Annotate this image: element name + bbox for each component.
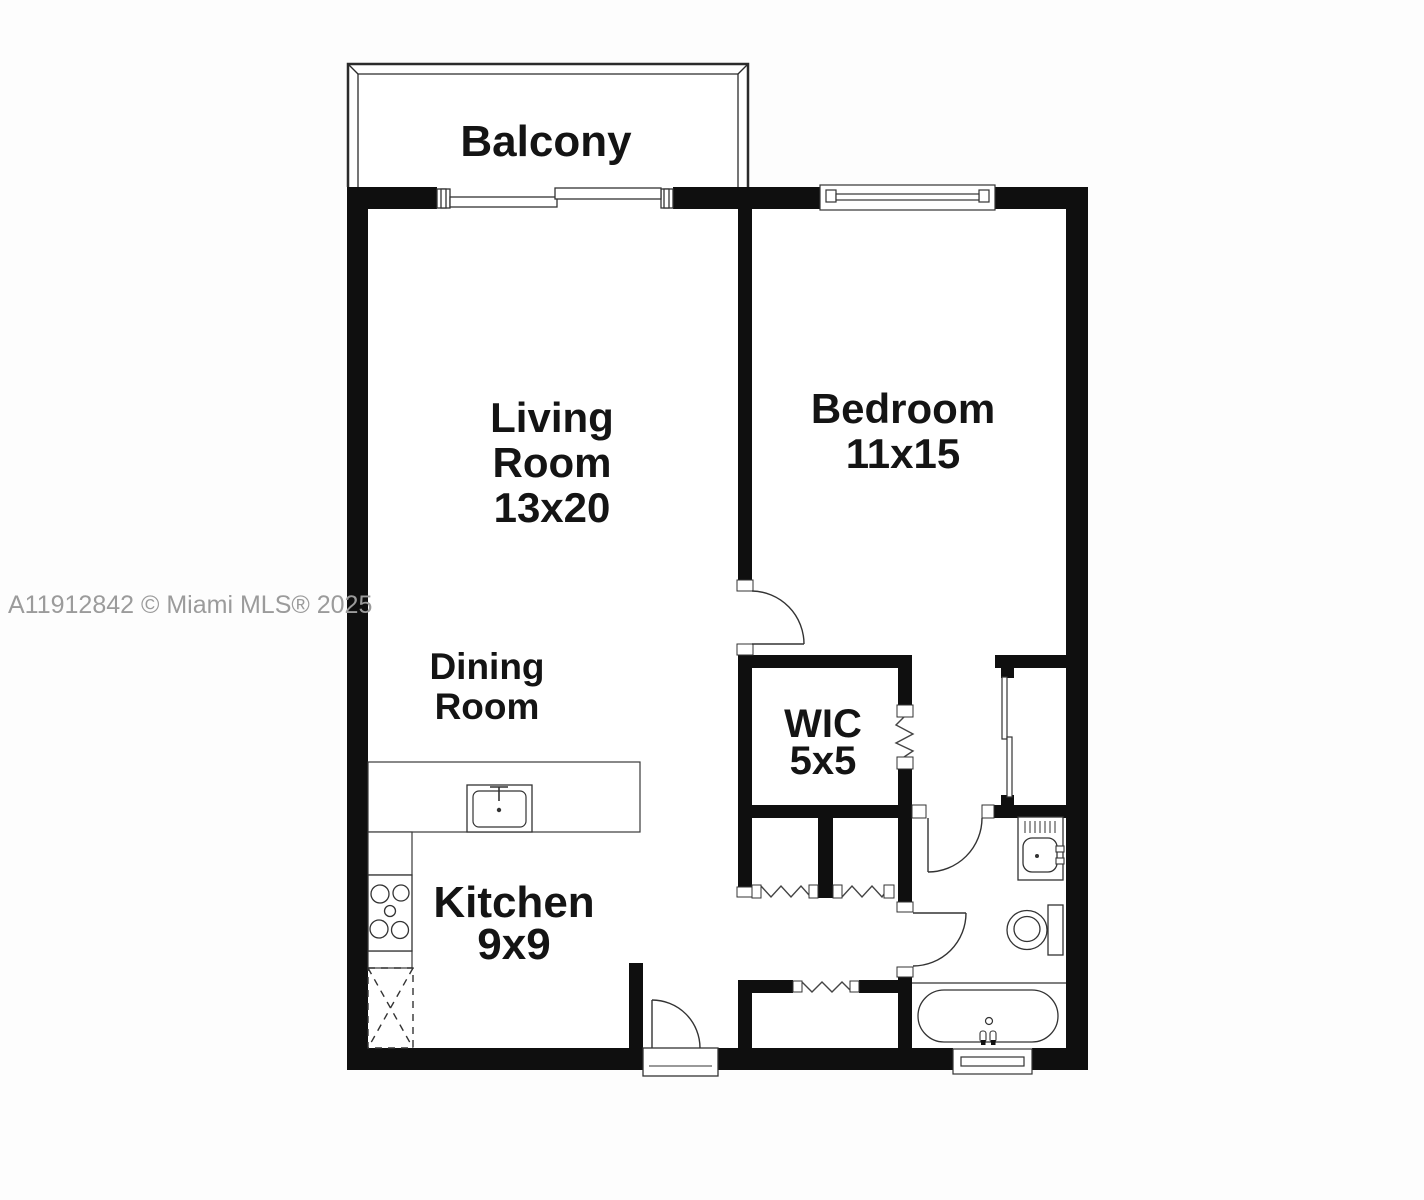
living-room-dims: 13x20 bbox=[494, 484, 611, 531]
floor-plan-drawing: Balcony Living Room 13x20 Bedroom 11x15 … bbox=[0, 0, 1424, 1200]
dining-room-label-line1: Dining bbox=[429, 646, 544, 687]
bedroom-window bbox=[820, 185, 995, 210]
living-room-label-line2: Room bbox=[493, 439, 612, 486]
bedroom-label: Bedroom bbox=[811, 385, 995, 432]
living-room-label-line1: Living bbox=[490, 394, 614, 441]
vanity-sink bbox=[1018, 817, 1064, 880]
kitchen-dims: 9x9 bbox=[477, 920, 550, 969]
bathtub bbox=[912, 983, 1066, 1045]
dining-room-label-line2: Room bbox=[435, 686, 540, 727]
floor-plan-page: Balcony Living Room 13x20 Bedroom 11x15 … bbox=[0, 0, 1424, 1200]
mls-watermark: A11912842 © Miami MLS® 2025 bbox=[8, 591, 372, 619]
balcony-label: Balcony bbox=[460, 117, 632, 166]
bathroom-window bbox=[953, 1049, 1032, 1074]
wic-dims: 5x5 bbox=[790, 739, 857, 783]
stove bbox=[368, 875, 412, 951]
bedroom-dims: 11x15 bbox=[846, 430, 960, 477]
unit-floor bbox=[347, 187, 1088, 1070]
kitchen-sink bbox=[467, 785, 532, 832]
